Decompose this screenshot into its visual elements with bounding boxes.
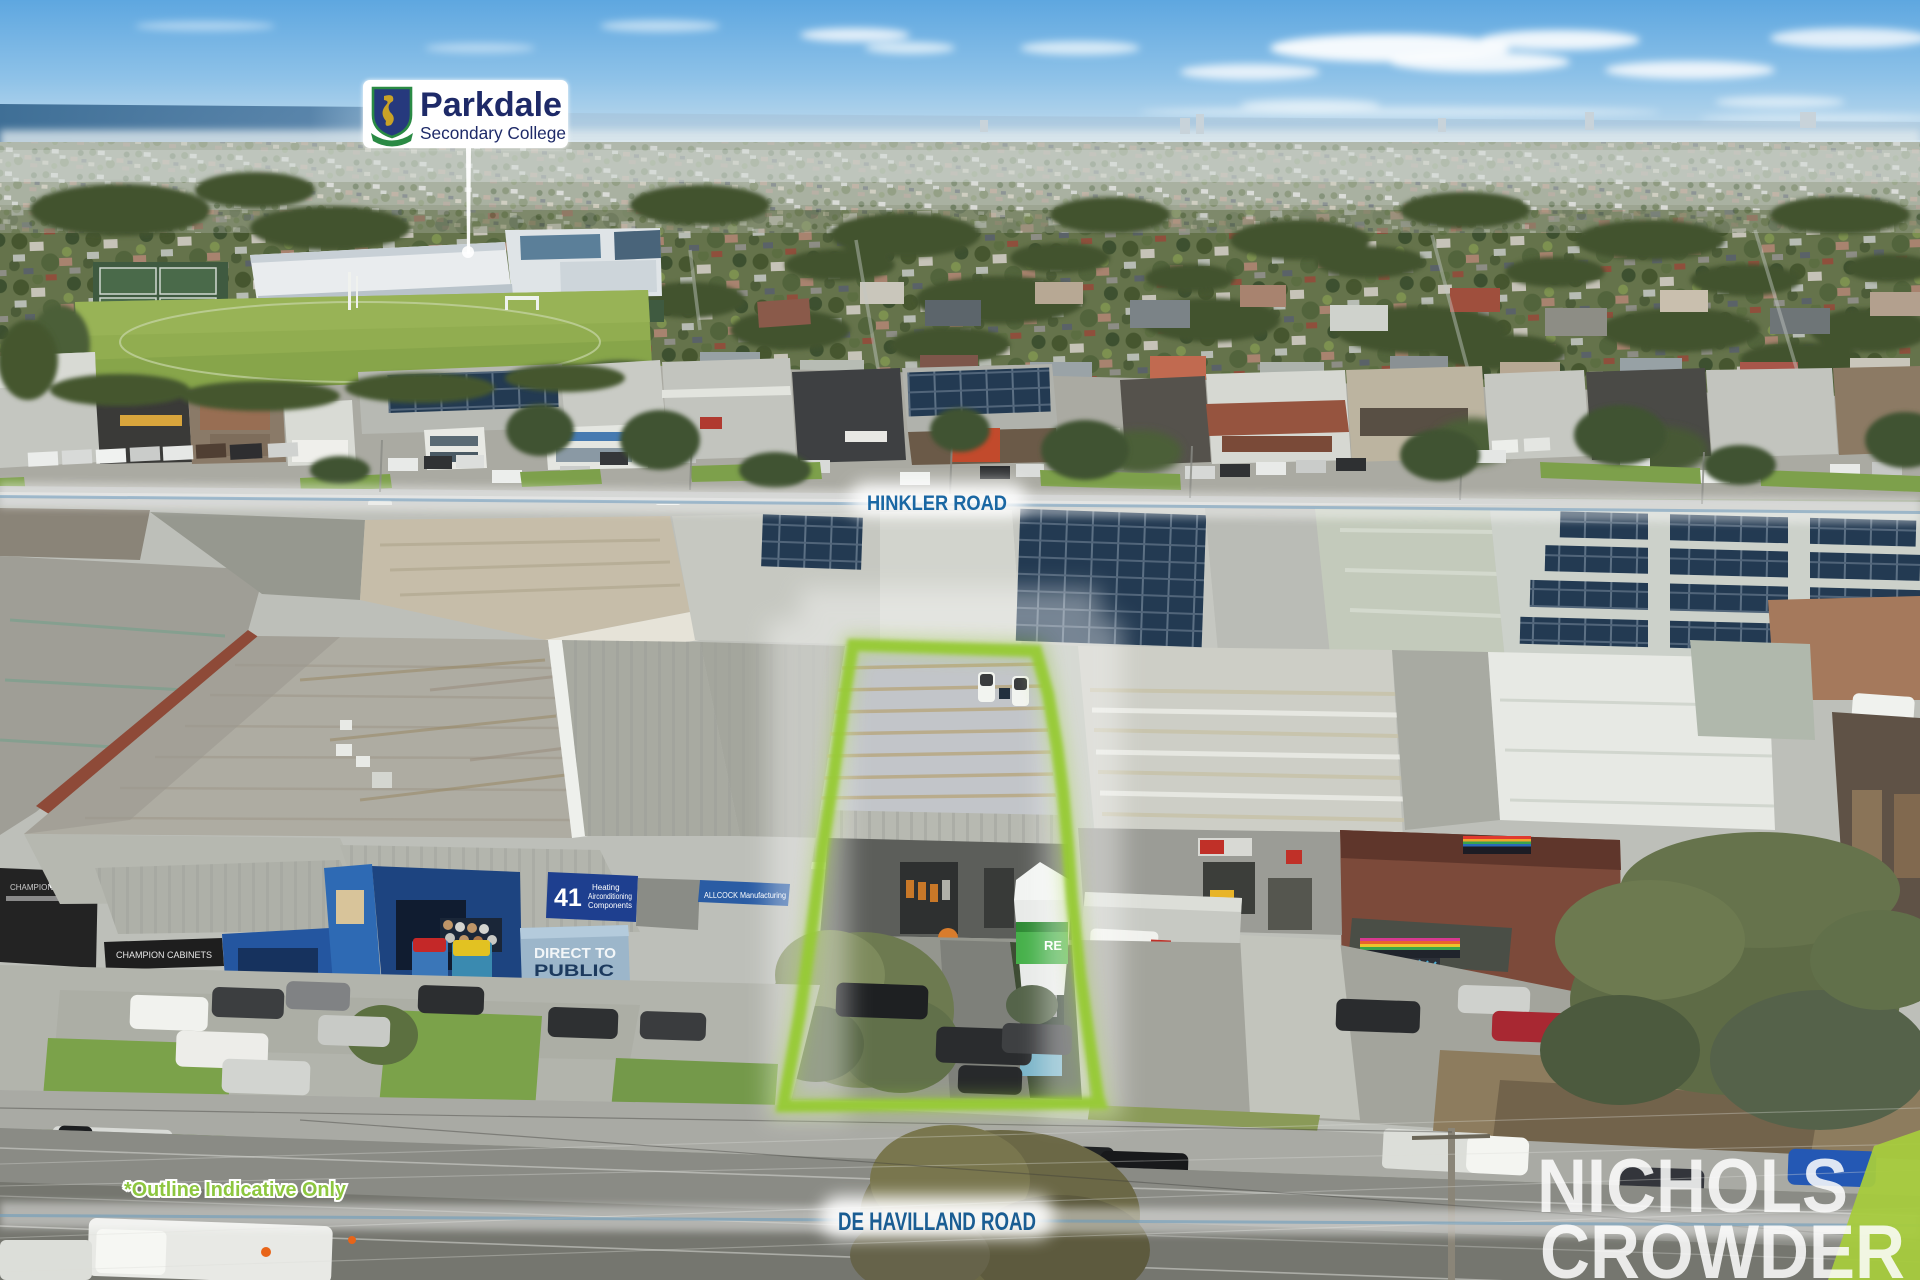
svg-text:PUBLIC: PUBLIC	[534, 961, 614, 980]
svg-text:41: 41	[554, 884, 582, 912]
svg-text:CHAMPION CABINETS: CHAMPION CABINETS	[116, 950, 212, 960]
svg-text:*Outline Indicative Only: *Outline Indicative Only	[124, 1179, 347, 1201]
svg-text:Secondary College: Secondary College	[420, 123, 566, 143]
svg-text:DE HAVILLAND ROAD: DE HAVILLAND ROAD	[838, 1208, 1036, 1236]
svg-text:Airconditioning: Airconditioning	[588, 892, 632, 901]
svg-text:Components: Components	[588, 901, 632, 910]
svg-text:CROWDER: CROWDER	[1540, 1210, 1905, 1280]
svg-text:Heating: Heating	[592, 883, 620, 892]
svg-text:Parkdale: Parkdale	[420, 86, 562, 124]
svg-text:DIRECT TO: DIRECT TO	[534, 945, 616, 962]
svg-text:HINKLER ROAD: HINKLER ROAD	[867, 492, 1007, 515]
